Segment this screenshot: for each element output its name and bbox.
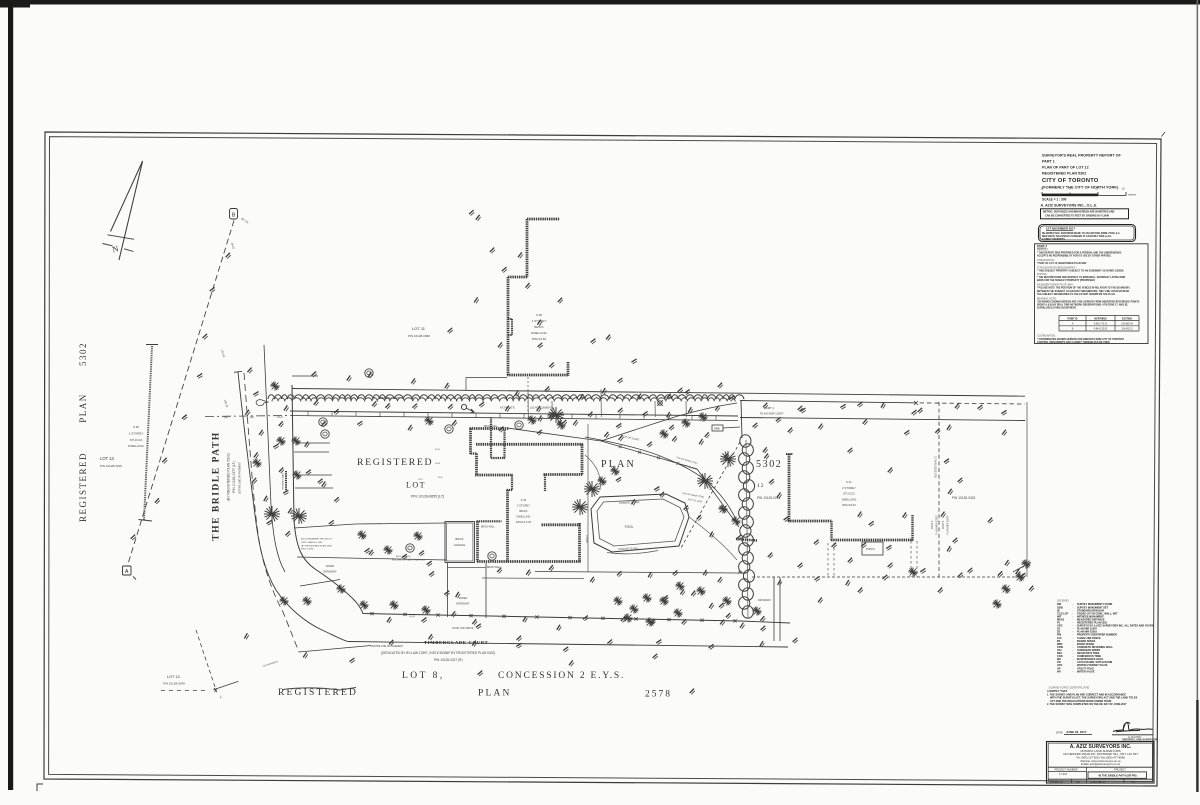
svg-text:N: N: [111, 243, 119, 254]
svg-text:PROJECT: PROJECT: [1114, 768, 1126, 771]
svg-text:* PLEASE NOTE THE POSITION OF: * PLEASE NOTE THE POSITION OF THE FENCES…: [1037, 287, 1131, 290]
svg-text:* BEARINGS SHOWN HEREON ARE UT: * BEARINGS SHOWN HEREON ARE UTM, DERIVED…: [1037, 300, 1140, 303]
svg-text:2 STOREY: 2 STOREY: [517, 504, 530, 508]
svg-text:160.30: 160.30: [223, 399, 229, 408]
svg-text:LOT 13: LOT 13: [100, 456, 115, 461]
svg-text:B: B: [1072, 329, 1074, 331]
svg-text:BRICK: BRICK: [534, 325, 543, 329]
svg-text:5150: 5150: [438, 477, 444, 479]
svg-text:* THIS REPORT WAS PREPARED FOR: * THIS REPORT WAS PREPARED FOR A.PERSON,…: [1037, 252, 1122, 255]
svg-text:EASEMENTS/RIGHTS-OF-WAY:: EASEMENTS/RIGHTS-OF-WAY:: [1037, 283, 1074, 286]
svg-text:N10°28'30"W 45.72: N10°28'30"W 45.72: [935, 455, 938, 477]
svg-text:BRICK WALL: BRICK WALL: [481, 526, 496, 529]
svg-text:DRIVEWAY: DRIVEWAY: [323, 570, 337, 574]
svg-text:TIMBERGLADE COURT: TIMBERGLADE COURT: [424, 640, 488, 645]
svg-text:1ST NOVEMBER 2017: 1ST NOVEMBER 2017: [1046, 226, 1076, 230]
svg-text:C1/2: C1/2: [277, 415, 283, 419]
svg-text:PIN 10128-0325: PIN 10128-0325: [952, 496, 975, 500]
svg-text:CONCESSION 2 E.Y.S.: CONCESSION 2 E.Y.S.: [498, 671, 625, 681]
svg-text:BRICK WALL: BRICK WALL: [487, 566, 502, 569]
svg-text:314,685.46: 314,685.46: [1121, 324, 1133, 326]
svg-text:151.62: 151.62: [220, 349, 226, 358]
svg-text:7811: 7811: [418, 479, 423, 481]
svg-text:A: A: [125, 569, 129, 575]
svg-text:CENTRE LINE OF PAVEMENT: CENTRE LINE OF PAVEMENT: [239, 461, 242, 494]
svg-text:PAVED: PAVED: [586, 535, 589, 543]
svg-text:(BY REGISTERED PLAN 5302): (BY REGISTERED PLAN 5302): [301, 544, 332, 547]
svg-text:ZONING:: ZONING:: [1037, 273, 1048, 276]
svg-text:REGISTERED: REGISTERED: [78, 452, 88, 522]
svg-text:THE BRIDLE PATH: THE BRIDLE PATH: [211, 431, 222, 541]
svg-text:5302: 5302: [756, 459, 782, 470]
svg-text:B: B: [232, 213, 236, 219]
svg-text:POINT ID: POINT ID: [1068, 318, 1078, 320]
svg-text:DRAWN BY: DRAWN BY: [1050, 780, 1064, 783]
svg-text:A: A: [1072, 323, 1074, 326]
svg-text:DRIVEWAY: DRIVEWAY: [758, 599, 771, 602]
svg-text:45 THE BRIDLE PATH (SR-PR): 45 THE BRIDLE PATH (SR-PR): [1098, 773, 1137, 777]
svg-text:CAN BE CONVERTED TO FEET BY DI: CAN BE CONVERTED TO FEET BY DIVIDING BY …: [1045, 214, 1110, 217]
svg-text:* THE RESTRICTIONS AND RESPECT: * THE RESTRICTIONS AND RESPECT TO MARGIN…: [1037, 276, 1126, 279]
svg-text:RETAINING WALL: RETAINING WALL: [282, 472, 285, 490]
svg-text:* THIS SUBJECT PROPERTY SUBJEC: * THIS SUBJECT PROPERTY SUBJECT TO AN EA…: [1037, 270, 1124, 273]
svg-text:PIN 10128-6855 [LT]: PIN 10128-6855 [LT]: [411, 495, 444, 499]
svg-text:PIN 10128-0377 (LT): PIN 10128-0377 (LT): [232, 461, 236, 493]
svg-text:PART 2: PART 2: [931, 520, 934, 529]
svg-text:BUILDING SETBACK PLAN 5302: BUILDING SETBACK PLAN 5302: [392, 559, 426, 562]
svg-text:A. AZIZ SURVEYORS INC., O.L.S.: A. AZIZ SURVEYORS INC., O.L.S.: [1041, 203, 1098, 207]
svg-text:120 NEWKIRK ROAD #37, RICHMON: 120 NEWKIRK ROAD #37, RICHMOND HILL, ONT…: [1063, 752, 1138, 756]
svg-text:WATER VALVE: WATER VALVE: [1077, 670, 1095, 673]
svg-text:BLDG EASEMENT PROJECTS: BLDG EASEMENT PROJECTS: [301, 538, 332, 541]
svg-text:WV: WV: [1057, 670, 1061, 673]
svg-text:BRICK: BRICK: [519, 509, 527, 513]
svg-text:BETWEEN THE SUBJECT & EASTERLY: BETWEEN THE SUBJECT & EASTERLY NEIGHBOUR…: [1037, 290, 1129, 293]
svg-text:PAVED: PAVED: [326, 564, 335, 568]
svg-text:EASTING: EASTING: [1122, 317, 1132, 320]
svg-text:INTEGRATION:: INTEGRATION:: [1037, 259, 1055, 262]
svg-text:STUCCO: STUCCO: [843, 492, 856, 496]
svg-text:12: 12: [757, 483, 765, 489]
svg-text:607.59: 607.59: [240, 217, 249, 225]
svg-text:45.05: 45.05: [409, 615, 416, 618]
svg-text:NORTHING: NORTHING: [1094, 318, 1106, 320]
svg-text:(31): (31): [250, 415, 255, 419]
svg-text:MB: MB: [1076, 780, 1080, 783]
svg-text:2578: 2578: [645, 690, 672, 700]
svg-text:10: 10: [1122, 188, 1125, 191]
svg-text:(POINT A & B) BY REAL TIME NET: (POINT A & B) BY REAL TIME NETWORK OBSER…: [1037, 304, 1128, 307]
svg-text:SURVEYOR'S REAL PROPERTY REPOR: SURVEYOR'S REAL PROPERTY REPORT OF: [1042, 154, 1121, 158]
svg-text:DIN=10.3.30: DIN=10.3.30: [516, 520, 532, 524]
svg-text:ACCEPTS NO RESPONSIBILITY FOR: ACCEPTS NO RESPONSIBILITY FOR ITS USE BY…: [1037, 255, 1112, 258]
svg-text:CHECKED BY: CHECKED BY: [1090, 780, 1107, 783]
svg-text:metres: metres: [1128, 193, 1137, 197]
svg-text:# 36: # 36: [133, 425, 139, 429]
svg-text:5148: 5148: [435, 463, 441, 465]
svg-text:DWELLING: DWELLING: [842, 497, 857, 501]
svg-text:-: -: [1073, 670, 1074, 673]
svg-text:SURVEYOR'S CERTIFICATE: SURVEYOR'S CERTIFICATE: [1049, 686, 1090, 690]
svg-text:2 STOREY: 2 STOREY: [842, 486, 856, 490]
svg-text:152.40 (P1&MEAS): 152.40 (P1&MEAS): [530, 406, 553, 410]
svg-text:PLAN: PLAN: [78, 393, 88, 423]
svg-text:STUCCO: STUCCO: [130, 438, 143, 442]
svg-text:PIN 10128-0327 (R): PIN 10128-0327 (R): [434, 658, 463, 662]
svg-text:2. THE SURVEY WAS COMPLETED ON: 2. THE SURVEY WAS COMPLETED ON THE 9th D…: [1047, 703, 1127, 706]
svg-text:PROJECT NUMBER: PROJECT NUMBER: [1054, 768, 1077, 771]
svg-text:RE-INSPECTED: ADDITIONS MADE T: RE-INSPECTED: ADDITIONS MADE TO AN EXIST…: [1042, 232, 1120, 235]
svg-text:BEARING NOTE:: BEARING NOTE:: [1037, 297, 1057, 300]
svg-text:METRIC: DISTANCES SHOWN HEREO: METRIC: DISTANCES SHOWN HEREON ARE IN ME…: [1043, 211, 1115, 214]
svg-text:BRICK WALL: BRICK WALL: [484, 425, 499, 428]
svg-text:BOT 45, 2016: BOT 45, 2016: [688, 499, 703, 504]
svg-text:CONCRETE PAD: CONCRETE PAD: [618, 546, 639, 551]
svg-text:PIN 10128-0249: PIN 10128-0249: [100, 464, 122, 468]
svg-text:DWELLING: DWELLING: [531, 331, 547, 335]
svg-text:5302: 5302: [78, 342, 88, 366]
svg-text:THE SUBJECT BOUNDARIES TO THE: THE SUBJECT BOUNDARIES TO THE EXTENT SHO…: [1037, 293, 1115, 296]
svg-text:17-304: 17-304: [1059, 772, 1068, 776]
svg-text:5146: 5146: [435, 449, 441, 451]
svg-text:(31 DEGREES): (31 DEGREES): [263, 661, 279, 668]
svg-text:A DIRECT REPORTS.: A DIRECT REPORTS.: [1042, 238, 1066, 241]
svg-text:PLAN 66R-12597: PLAN 66R-12597: [936, 515, 939, 535]
svg-text:(BY REGISTERED PLAN 5302): (BY REGISTERED PLAN 5302): [227, 453, 231, 501]
svg-text:REGISTERED PLAN 5302: REGISTERED PLAN 5302: [1042, 172, 1086, 176]
svg-text:# 48: # 48: [536, 313, 542, 317]
svg-text:PAVED: PAVED: [459, 596, 468, 600]
svg-text:DWELLING: DWELLING: [516, 515, 530, 519]
svg-text:TOP OF BANK (TOE): TOP OF BANK (TOE): [682, 492, 705, 499]
svg-text:SCALE = 1 : 300: SCALE = 1 : 300: [1042, 197, 1067, 201]
svg-text:A.A.: A.A.: [1131, 780, 1136, 783]
svg-text:LOT 8,: LOT 8,: [402, 671, 445, 681]
svg-text:DWELLING: DWELLING: [128, 444, 144, 448]
svg-text:CENTRE LINE OF PAVEMENT: CENTRE LINE OF PAVEMENT: [371, 645, 404, 648]
svg-text:(FORMERLY THE CITY OF NORT: (FORMERLY THE CITY OF NORTH YORK): [1042, 185, 1119, 190]
svg-text:NEW DECK; NO FENCES CHANGED AT: NEW DECK; NO FENCES CHANGED AT EASTERLY …: [1042, 235, 1112, 238]
svg-text:REPORT:: REPORT:: [1037, 247, 1049, 251]
svg-text:46.18: 46.18: [230, 242, 236, 250]
svg-text:TOP OF SLOPE: TOP OF SLOPE: [622, 435, 640, 442]
svg-text:PLAN: PLAN: [601, 459, 636, 470]
svg-text:(DEDICATED BY BY-LAW 12597, IN: (DEDICATED BY BY-LAW 12597, INST# 55356P…: [381, 651, 495, 655]
svg-text:LOT 13: LOT 13: [167, 675, 180, 679]
svg-text:PART 1: PART 1: [1042, 160, 1055, 164]
svg-text:PIN T 0.07M: PIN T 0.07M: [301, 549, 313, 551]
svg-text:# 45: # 45: [521, 498, 527, 502]
svg-text:HRB: HRB: [714, 427, 720, 431]
svg-text:4,844,125.92: 4,844,125.92: [1094, 329, 1108, 331]
svg-text:DIN=21.81: DIN=21.81: [532, 337, 547, 341]
svg-text:PIN 10128-0249: PIN 10128-0249: [163, 682, 185, 686]
svg-text:CITY OF TORONTO: CITY OF TORONTO: [1042, 178, 1099, 184]
svg-text:BRICK: BRICK: [455, 537, 463, 541]
svg-text:I CERTIFY THAT:: I CERTIFY THAT:: [1047, 689, 1068, 693]
svg-text:L.: L.: [220, 695, 223, 699]
svg-text:ONTARIO LAND SURVEYORS: ONTARIO LAND SURVEYORS: [1080, 749, 1120, 753]
svg-text:GARAGE: GARAGE: [454, 543, 466, 547]
svg-text:PLAN OF PART OF LOT 12: PLAN OF PART OF LOT 12: [1042, 166, 1089, 170]
svg-text:PART 4: PART 4: [942, 520, 945, 529]
svg-text:CHAIN LINK FENCE: CHAIN LINK FENCE: [452, 627, 474, 630]
svg-text:ONTO LANDS 0.10M: ONTO LANDS 0.10M: [301, 541, 322, 544]
svg-text:BARS FOR THE SUBJECT PROPERTY: BARS FOR THE SUBJECT PROPERTY [PROPOSED]: [1037, 279, 1095, 282]
svg-text:REGISTERED: REGISTERED: [357, 457, 433, 468]
svg-text:DIN=34.64: DIN=34.64: [842, 503, 856, 507]
svg-text:POOL: POOL: [625, 525, 634, 529]
svg-text:JUNE 23, 2017: JUNE 23, 2017: [1066, 730, 1087, 734]
svg-text:1 STOREY: 1 STOREY: [129, 431, 144, 435]
svg-text:CONTROL MONUMENTS AND CANNOT T: CONTROL MONUMENTS AND CANNOT THEMSELVES …: [1037, 341, 1110, 344]
svg-text:PLAN 66R-12597: PLAN 66R-12597: [947, 515, 950, 535]
svg-text:SITE ELEVATION BENCHMARKS:: SITE ELEVATION BENCHMARKS:: [1037, 267, 1076, 270]
svg-text:4,843,776.41: 4,843,776.41: [1094, 324, 1108, 326]
svg-text:PLAN 66R-12597: PLAN 66R-12597: [760, 412, 784, 416]
svg-text:E-Mail: aziz@azizsurveyors.on.: E-Mail: aziz@azizsurveyors.on.ca: [1081, 762, 1121, 766]
svg-text:LOT 11: LOT 11: [412, 326, 426, 331]
svg-text:(CSRS) (2010) (UTM) ADJUSTMENT: (CSRS) (2010) (UTM) ADJUSTMENT.: [1037, 307, 1077, 310]
svg-text:PORCH: PORCH: [866, 548, 875, 551]
svg-text:PIN 10128-0838: PIN 10128-0838: [408, 334, 430, 338]
svg-text:# 41: # 41: [846, 480, 852, 484]
svg-text:314,662.11: 314,662.11: [1121, 329, 1133, 331]
svg-text:PLAN: PLAN: [478, 689, 512, 699]
svg-text:(31): (31): [224, 415, 229, 419]
svg-text:DRIVEWAY: DRIVEWAY: [456, 602, 470, 606]
svg-text:LOT: LOT: [406, 481, 426, 490]
svg-text:LEGEND:: LEGEND:: [1057, 599, 1070, 603]
svg-text:* PART OF LOT 12, REGISTERED P: * PART OF LOT 12, REGISTERED PLAN 5302: [1037, 262, 1087, 265]
svg-text:DATE: DATE: [1056, 730, 1063, 734]
